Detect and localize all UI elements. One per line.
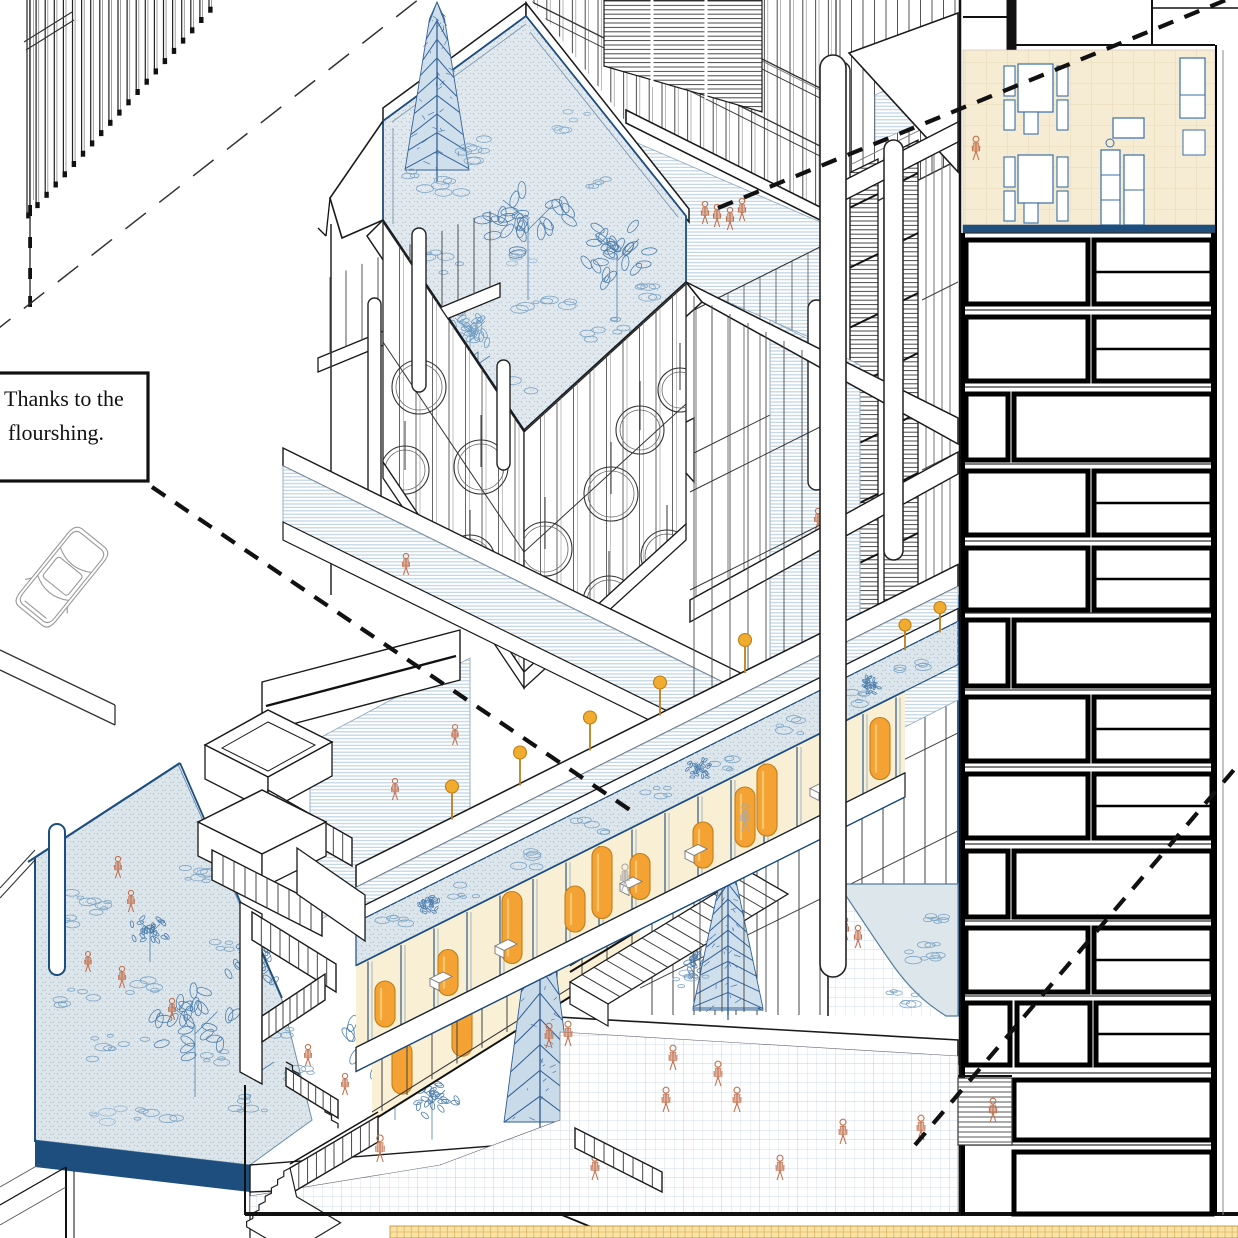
svg-text:flourshing.: flourshing. — [8, 420, 104, 445]
svg-text:Thanks to the: Thanks to the — [4, 386, 124, 411]
